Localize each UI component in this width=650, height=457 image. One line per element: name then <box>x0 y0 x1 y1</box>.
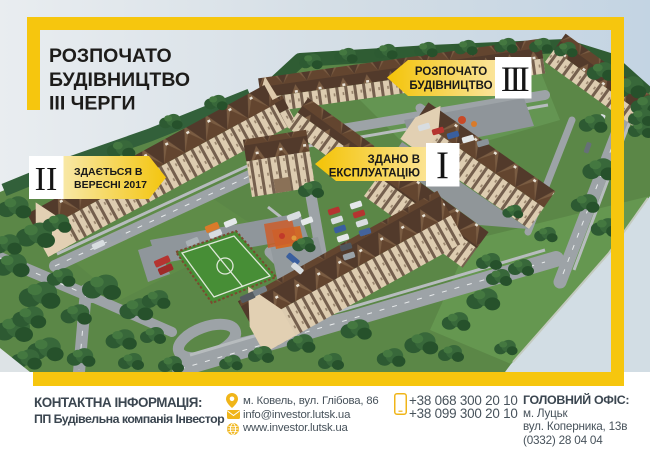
svg-text:ЗДАЄТЬСЯ В: ЗДАЄТЬСЯ В <box>74 166 143 178</box>
svg-text:III: III <box>501 59 529 99</box>
svg-text:I: I <box>436 144 449 187</box>
svg-text:ІІІ ЧЕРГИ: ІІІ ЧЕРГИ <box>49 93 135 115</box>
svg-text:БУДІВНИЦТВО: БУДІВНИЦТВО <box>409 80 492 92</box>
svg-text:РОЗПОЧАТО: РОЗПОЧАТО <box>49 45 172 67</box>
svg-text:ВЕРЕСНІ 2017: ВЕРЕСНІ 2017 <box>74 179 147 191</box>
svg-text:II: II <box>35 161 58 198</box>
svg-text:РОЗПОЧАТО: РОЗПОЧАТО <box>415 66 487 78</box>
svg-text:ЕКСПЛУАТАЦІЮ: ЕКСПЛУАТАЦІЮ <box>329 168 420 180</box>
svg-text:БУДІВНИЦТВО: БУДІВНИЦТВО <box>49 69 190 91</box>
svg-text:ЗДАНО В: ЗДАНО В <box>368 154 420 166</box>
